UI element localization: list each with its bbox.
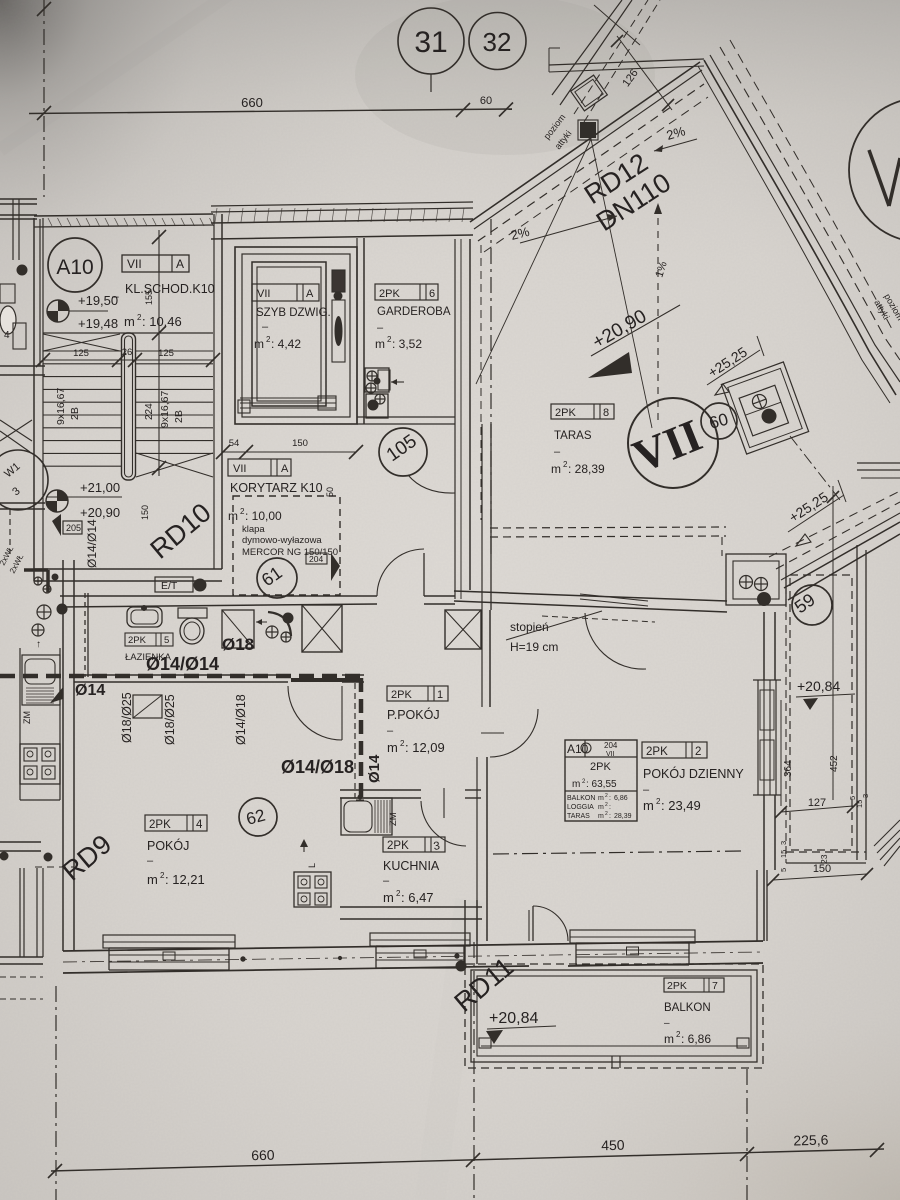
svg-text:26: 26 bbox=[122, 347, 133, 358]
svg-text::: : bbox=[609, 804, 611, 811]
svg-text:2: 2 bbox=[695, 746, 701, 758]
svg-text:Ø14/Ø14: Ø14/Ø14 bbox=[146, 654, 219, 674]
svg-text:KL.SCHOD.K10: KL.SCHOD.K10 bbox=[125, 282, 215, 296]
svg-text:–: – bbox=[377, 322, 384, 334]
svg-text:Ø18: Ø18 bbox=[222, 635, 254, 654]
svg-text:150: 150 bbox=[140, 505, 150, 520]
svg-text:VII: VII bbox=[257, 288, 270, 300]
svg-text:GARDEROBA: GARDEROBA bbox=[377, 306, 451, 318]
svg-text:m: m bbox=[598, 813, 604, 820]
svg-text:m: m bbox=[147, 872, 158, 887]
svg-text:A: A bbox=[281, 463, 289, 475]
svg-text:204: 204 bbox=[604, 741, 618, 750]
svg-text::: : bbox=[609, 795, 611, 802]
svg-text:m: m bbox=[254, 337, 264, 351]
svg-text:BALKON: BALKON bbox=[567, 795, 595, 802]
svg-text:: 28,39: : 28,39 bbox=[568, 462, 605, 476]
svg-text:H=19 cm: H=19 cm bbox=[510, 640, 558, 654]
svg-text:7: 7 bbox=[712, 980, 718, 992]
svg-text:dymowo-wyłazowa: dymowo-wyłazowa bbox=[242, 535, 322, 546]
svg-text:: 4,42: : 4,42 bbox=[271, 337, 301, 351]
svg-text:TARAS: TARAS bbox=[567, 813, 590, 820]
svg-text:+19,48: +19,48 bbox=[78, 316, 118, 331]
svg-text:: 10,00: : 10,00 bbox=[245, 509, 282, 523]
svg-text:+20,84: +20,84 bbox=[489, 1010, 538, 1027]
svg-text:660: 660 bbox=[251, 1147, 275, 1164]
svg-text:205: 205 bbox=[66, 523, 81, 533]
svg-text:450: 450 bbox=[601, 1137, 625, 1154]
svg-text:BALKON: BALKON bbox=[664, 1002, 711, 1014]
svg-text:50: 50 bbox=[325, 487, 335, 497]
svg-text:: 10,46: : 10,46 bbox=[142, 314, 182, 329]
svg-text:4: 4 bbox=[4, 330, 10, 341]
svg-text:3: 3 bbox=[861, 794, 870, 798]
svg-text:2B: 2B bbox=[173, 410, 185, 423]
svg-text:4: 4 bbox=[196, 819, 203, 831]
svg-text:15: 15 bbox=[855, 800, 864, 808]
svg-text:2B: 2B bbox=[69, 407, 81, 420]
svg-text:P.POKÓJ: P.POKÓJ bbox=[387, 707, 440, 722]
svg-text:32: 32 bbox=[483, 27, 512, 57]
svg-text:POKÓJ DZIENNY: POKÓJ DZIENNY bbox=[643, 766, 744, 781]
svg-text:5: 5 bbox=[164, 635, 169, 646]
svg-text:: 12,21: : 12,21 bbox=[165, 872, 205, 887]
svg-text:127: 127 bbox=[808, 797, 826, 809]
svg-text:Ø14/Ø18: Ø14/Ø18 bbox=[281, 757, 354, 777]
svg-text:: 6,86: : 6,86 bbox=[681, 1032, 711, 1046]
svg-text:9x16,67: 9x16,67 bbox=[55, 387, 67, 425]
svg-text:m: m bbox=[664, 1032, 674, 1046]
svg-text:VII: VII bbox=[233, 463, 246, 475]
svg-text:Ø18/Ø25: Ø18/Ø25 bbox=[163, 694, 177, 745]
svg-text:204: 204 bbox=[309, 554, 323, 564]
svg-text:A: A bbox=[176, 257, 184, 271]
svg-text:150: 150 bbox=[292, 438, 308, 449]
svg-text:m: m bbox=[598, 795, 604, 802]
svg-text:–: – bbox=[383, 875, 390, 887]
svg-text:6,86: 6,86 bbox=[614, 795, 628, 802]
svg-text:60: 60 bbox=[480, 95, 492, 107]
svg-text:2: 2 bbox=[605, 802, 608, 808]
svg-text:125: 125 bbox=[158, 348, 174, 359]
svg-text:2PK: 2PK bbox=[391, 689, 412, 701]
svg-text:A: A bbox=[306, 288, 314, 300]
svg-text:m: m bbox=[598, 804, 604, 811]
svg-text::: : bbox=[609, 813, 611, 820]
svg-text:–: – bbox=[112, 289, 119, 303]
svg-text:2PK: 2PK bbox=[667, 980, 687, 992]
svg-text:↑: ↑ bbox=[36, 639, 41, 650]
svg-text:LOGGIA: LOGGIA bbox=[567, 804, 594, 811]
svg-text:+20,84: +20,84 bbox=[797, 678, 840, 694]
svg-text:Ø18/Ø25: Ø18/Ø25 bbox=[120, 692, 134, 743]
svg-text:KORYTARZ K10: KORYTARZ K10 bbox=[230, 481, 323, 495]
svg-text:2PK: 2PK bbox=[128, 635, 147, 646]
svg-text:+21,00: +21,00 bbox=[80, 480, 120, 495]
svg-text:+20,90: +20,90 bbox=[80, 505, 120, 520]
svg-text:ZM: ZM bbox=[388, 812, 399, 826]
svg-text:364: 364 bbox=[783, 760, 794, 777]
svg-text:Ø14: Ø14 bbox=[75, 682, 105, 699]
svg-text:: 6,47: : 6,47 bbox=[401, 890, 434, 905]
svg-text:A10: A10 bbox=[56, 256, 93, 279]
svg-text:54: 54 bbox=[229, 438, 240, 449]
svg-text:5: 5 bbox=[848, 796, 857, 800]
svg-text:1: 1 bbox=[437, 689, 443, 701]
svg-text:3: 3 bbox=[779, 841, 788, 845]
svg-text:–: – bbox=[387, 725, 394, 737]
svg-text:2PK: 2PK bbox=[149, 819, 171, 831]
svg-text:m: m bbox=[551, 462, 561, 476]
svg-text:E/T: E/T bbox=[161, 580, 178, 592]
svg-text:–: – bbox=[147, 855, 154, 867]
svg-text:8: 8 bbox=[603, 407, 609, 419]
svg-text:224: 224 bbox=[144, 403, 155, 420]
svg-text:125: 125 bbox=[73, 348, 89, 359]
svg-text:Ø14/Ø18: Ø14/Ø18 bbox=[234, 694, 248, 745]
svg-text:: 12,09: : 12,09 bbox=[405, 740, 445, 755]
svg-text:–: – bbox=[643, 784, 650, 796]
svg-text:9x16,67: 9x16,67 bbox=[159, 390, 171, 428]
svg-text:452: 452 bbox=[829, 755, 840, 772]
svg-text:SZYB DZWIG.: SZYB DZWIG. bbox=[256, 307, 331, 319]
svg-text:stopień: stopień bbox=[510, 620, 549, 634]
svg-text:KUCHNIA: KUCHNIA bbox=[383, 859, 440, 873]
svg-text:m: m bbox=[643, 798, 654, 813]
svg-text:: 3,52: : 3,52 bbox=[392, 337, 422, 351]
svg-text:225,6: 225,6 bbox=[793, 1132, 829, 1149]
svg-text:VII: VII bbox=[606, 751, 615, 758]
svg-text:Ø14: Ø14 bbox=[366, 754, 383, 783]
svg-text:L: L bbox=[307, 863, 317, 868]
svg-text:2PK: 2PK bbox=[590, 761, 611, 773]
svg-text:660: 660 bbox=[241, 95, 263, 110]
svg-text:m: m bbox=[387, 740, 398, 755]
svg-text:2PK: 2PK bbox=[379, 288, 400, 300]
svg-text:TARAS: TARAS bbox=[554, 430, 592, 442]
svg-text:23: 23 bbox=[819, 854, 829, 864]
svg-text:: 63,55: : 63,55 bbox=[586, 779, 617, 790]
svg-text:6: 6 bbox=[429, 288, 435, 300]
svg-text:15: 15 bbox=[779, 850, 788, 858]
svg-text:klapa: klapa bbox=[242, 524, 265, 535]
svg-text:2PK: 2PK bbox=[646, 746, 668, 758]
svg-text:2: 2 bbox=[605, 811, 608, 817]
svg-text:m: m bbox=[375, 337, 385, 351]
svg-text:: 23,49: : 23,49 bbox=[661, 798, 701, 813]
svg-text:–: – bbox=[554, 446, 561, 458]
svg-text:155: 155 bbox=[144, 290, 154, 305]
svg-text:28,39: 28,39 bbox=[614, 813, 632, 820]
svg-text:VII: VII bbox=[127, 257, 142, 271]
svg-text:m: m bbox=[228, 509, 238, 523]
svg-text:POKÓJ: POKÓJ bbox=[147, 838, 189, 853]
svg-text:m: m bbox=[124, 314, 135, 329]
svg-text:–: – bbox=[664, 1018, 670, 1029]
svg-text:2PK: 2PK bbox=[387, 840, 409, 852]
svg-text:2: 2 bbox=[605, 793, 608, 799]
svg-text:2PK: 2PK bbox=[555, 407, 576, 419]
svg-text:m: m bbox=[572, 779, 580, 790]
svg-text:m: m bbox=[383, 890, 394, 905]
svg-text:31: 31 bbox=[414, 26, 447, 59]
svg-text:Ø14/Ø14: Ø14/Ø14 bbox=[85, 519, 99, 568]
svg-text:A10: A10 bbox=[567, 742, 589, 756]
svg-text:ZM: ZM bbox=[22, 711, 32, 724]
svg-text:–: – bbox=[262, 321, 269, 333]
svg-text:5: 5 bbox=[779, 868, 788, 872]
